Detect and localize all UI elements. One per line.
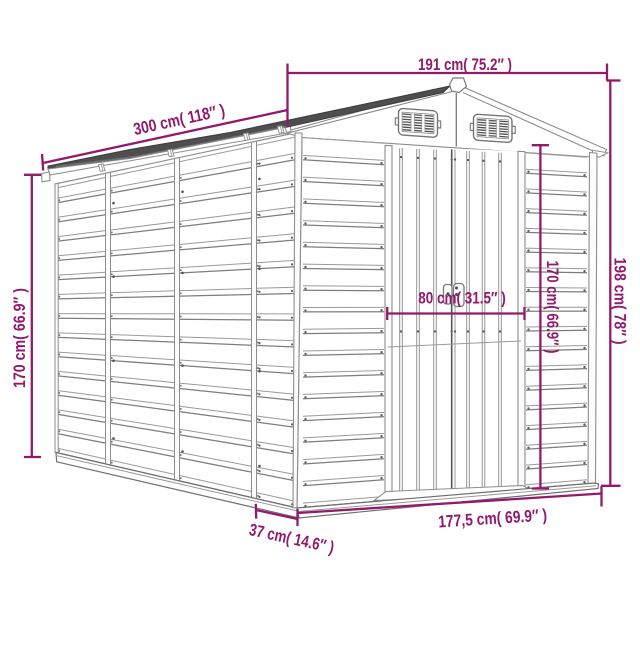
svg-text:80 cm( 31.5″ ): 80 cm( 31.5″ ) — [418, 289, 506, 308]
svg-text:170 cm( 66.9″ ): 170 cm( 66.9″ ) — [10, 288, 29, 388]
svg-text:198 cm( 78″ ): 198 cm( 78″ ) — [611, 258, 630, 345]
svg-text:191 cm( 75.2″ ): 191 cm( 75.2″ ) — [418, 55, 512, 74]
svg-text:170 cm( 66.9″ ): 170 cm( 66.9″ ) — [543, 261, 562, 354]
